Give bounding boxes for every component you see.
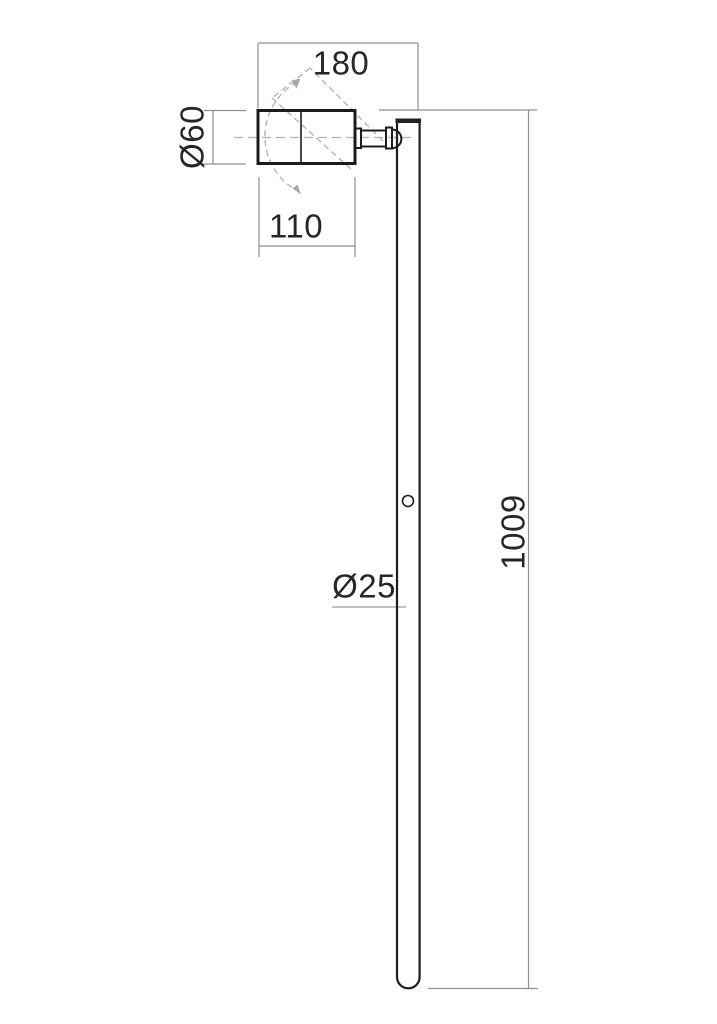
swivel-arc-dashed xyxy=(265,82,297,190)
tilted-head-edge-3 xyxy=(272,98,352,170)
swivel-arrow-down-icon xyxy=(293,185,302,195)
technical-drawing-page: 180 Ø60 110 Ø25 1009 xyxy=(0,0,717,1024)
swivel-arrow-up-icon xyxy=(292,79,301,89)
pole-top-cap xyxy=(396,119,422,124)
dimension-label-head-length: 110 xyxy=(269,208,323,245)
pole-screw-hole xyxy=(403,496,414,507)
tilted-head-edge-2 xyxy=(272,68,310,98)
dimension-label-head-diameter: Ø60 xyxy=(174,105,211,169)
pole-spotlight-dimension-drawing: 180 Ø60 110 Ø25 1009 xyxy=(0,0,717,1024)
dimension-label-pole-height: 1009 xyxy=(495,494,532,569)
joint-arm xyxy=(361,131,386,147)
pole-outline xyxy=(397,123,420,988)
pole xyxy=(396,119,422,989)
dimension-label-pole-diameter: Ø25 xyxy=(332,568,396,605)
dimension-label-head-span: 180 xyxy=(313,45,370,82)
